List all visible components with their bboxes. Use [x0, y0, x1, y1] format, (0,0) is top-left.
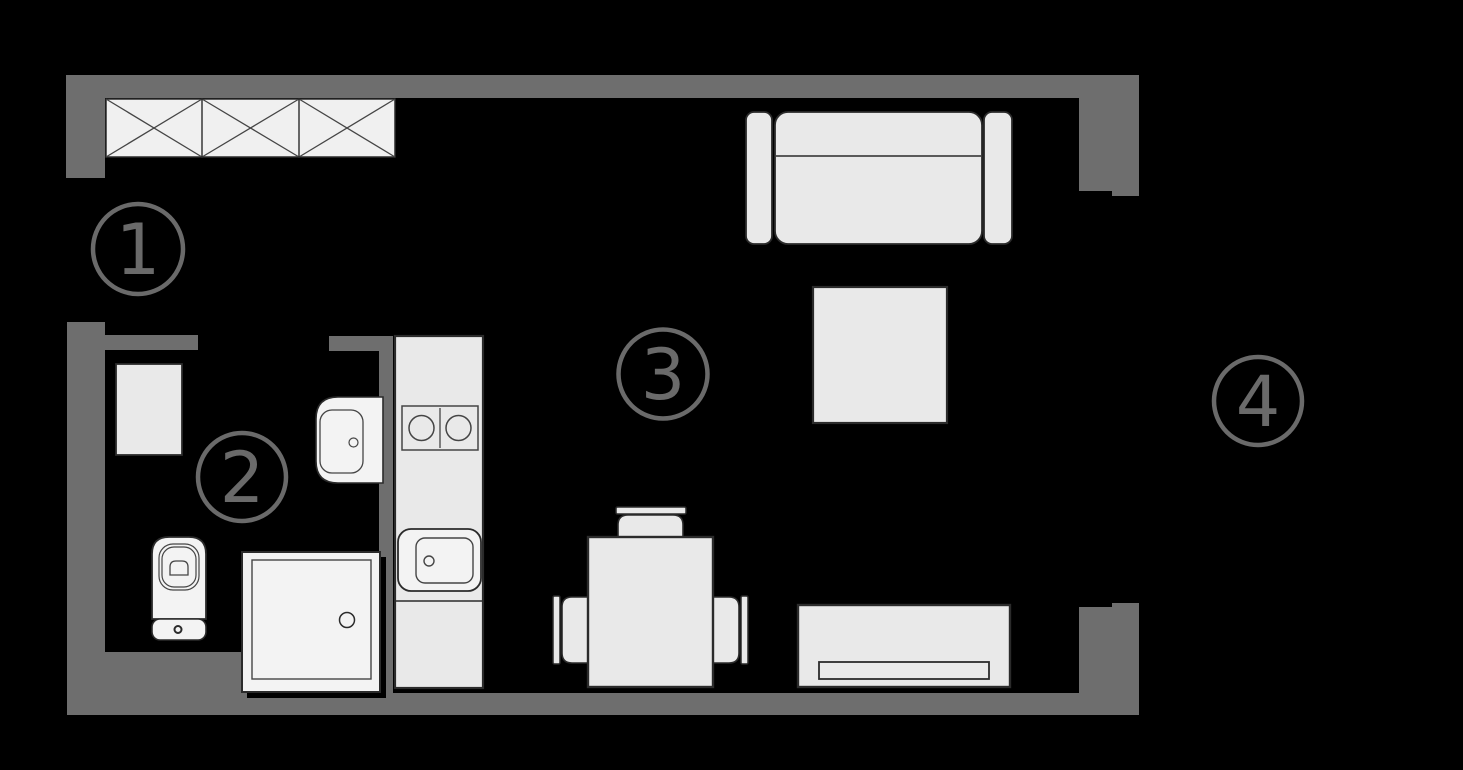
kitchen-sink — [398, 529, 481, 591]
shower-tray — [242, 552, 380, 692]
wardrobe — [106, 99, 395, 157]
dining-set — [553, 507, 748, 687]
room-label-4: 4 — [1214, 357, 1302, 445]
shower-door-handle — [340, 613, 355, 628]
chair-left-backrest — [553, 596, 560, 664]
chair-top-backrest — [616, 507, 686, 514]
kitchen-sink-faucet — [424, 556, 434, 566]
chair-right — [712, 597, 739, 663]
sofa-armrest-right — [984, 112, 1012, 244]
wall-top — [66, 75, 1139, 98]
kitchen-counter — [395, 336, 483, 688]
toilet-body — [152, 537, 206, 619]
toilet — [152, 537, 206, 640]
toilet-tank-button — [175, 626, 182, 633]
floorplan-drawing: 1 2 3 4 — [0, 0, 1463, 770]
room-label-2: 2 — [198, 433, 286, 521]
room-number: 2 — [220, 437, 265, 519]
wall-right-upper — [1079, 98, 1139, 196]
room-label-1: 1 — [93, 204, 183, 294]
kitchen-counter-body — [395, 336, 483, 688]
chair-top — [618, 515, 683, 538]
dining-table — [588, 537, 713, 687]
chair-left — [562, 597, 589, 663]
sideboard-drawer — [819, 662, 989, 679]
shower — [242, 552, 386, 698]
wall-bathroom-top-left — [105, 335, 198, 350]
chair-right-backrest — [741, 596, 748, 664]
room-number: 3 — [641, 334, 686, 416]
room-number: 4 — [1236, 361, 1281, 443]
toilet-flush — [170, 561, 188, 575]
coffee-table — [813, 287, 947, 423]
floorplan-canvas: 1 2 3 4 — [0, 0, 1463, 770]
sofa-body — [775, 112, 982, 244]
bathroom-sink — [316, 397, 383, 483]
sofa-armrest-left — [746, 112, 772, 244]
room-label-3: 3 — [619, 330, 708, 419]
wall-bottom — [67, 693, 1139, 715]
washing-machine — [116, 364, 182, 455]
wall-left-upper — [66, 75, 105, 178]
wall-right-lower — [1079, 603, 1139, 715]
sofa — [746, 112, 1012, 244]
room-number: 1 — [116, 209, 161, 291]
bathroom-sink-faucet — [349, 438, 358, 447]
sideboard — [798, 605, 1010, 687]
